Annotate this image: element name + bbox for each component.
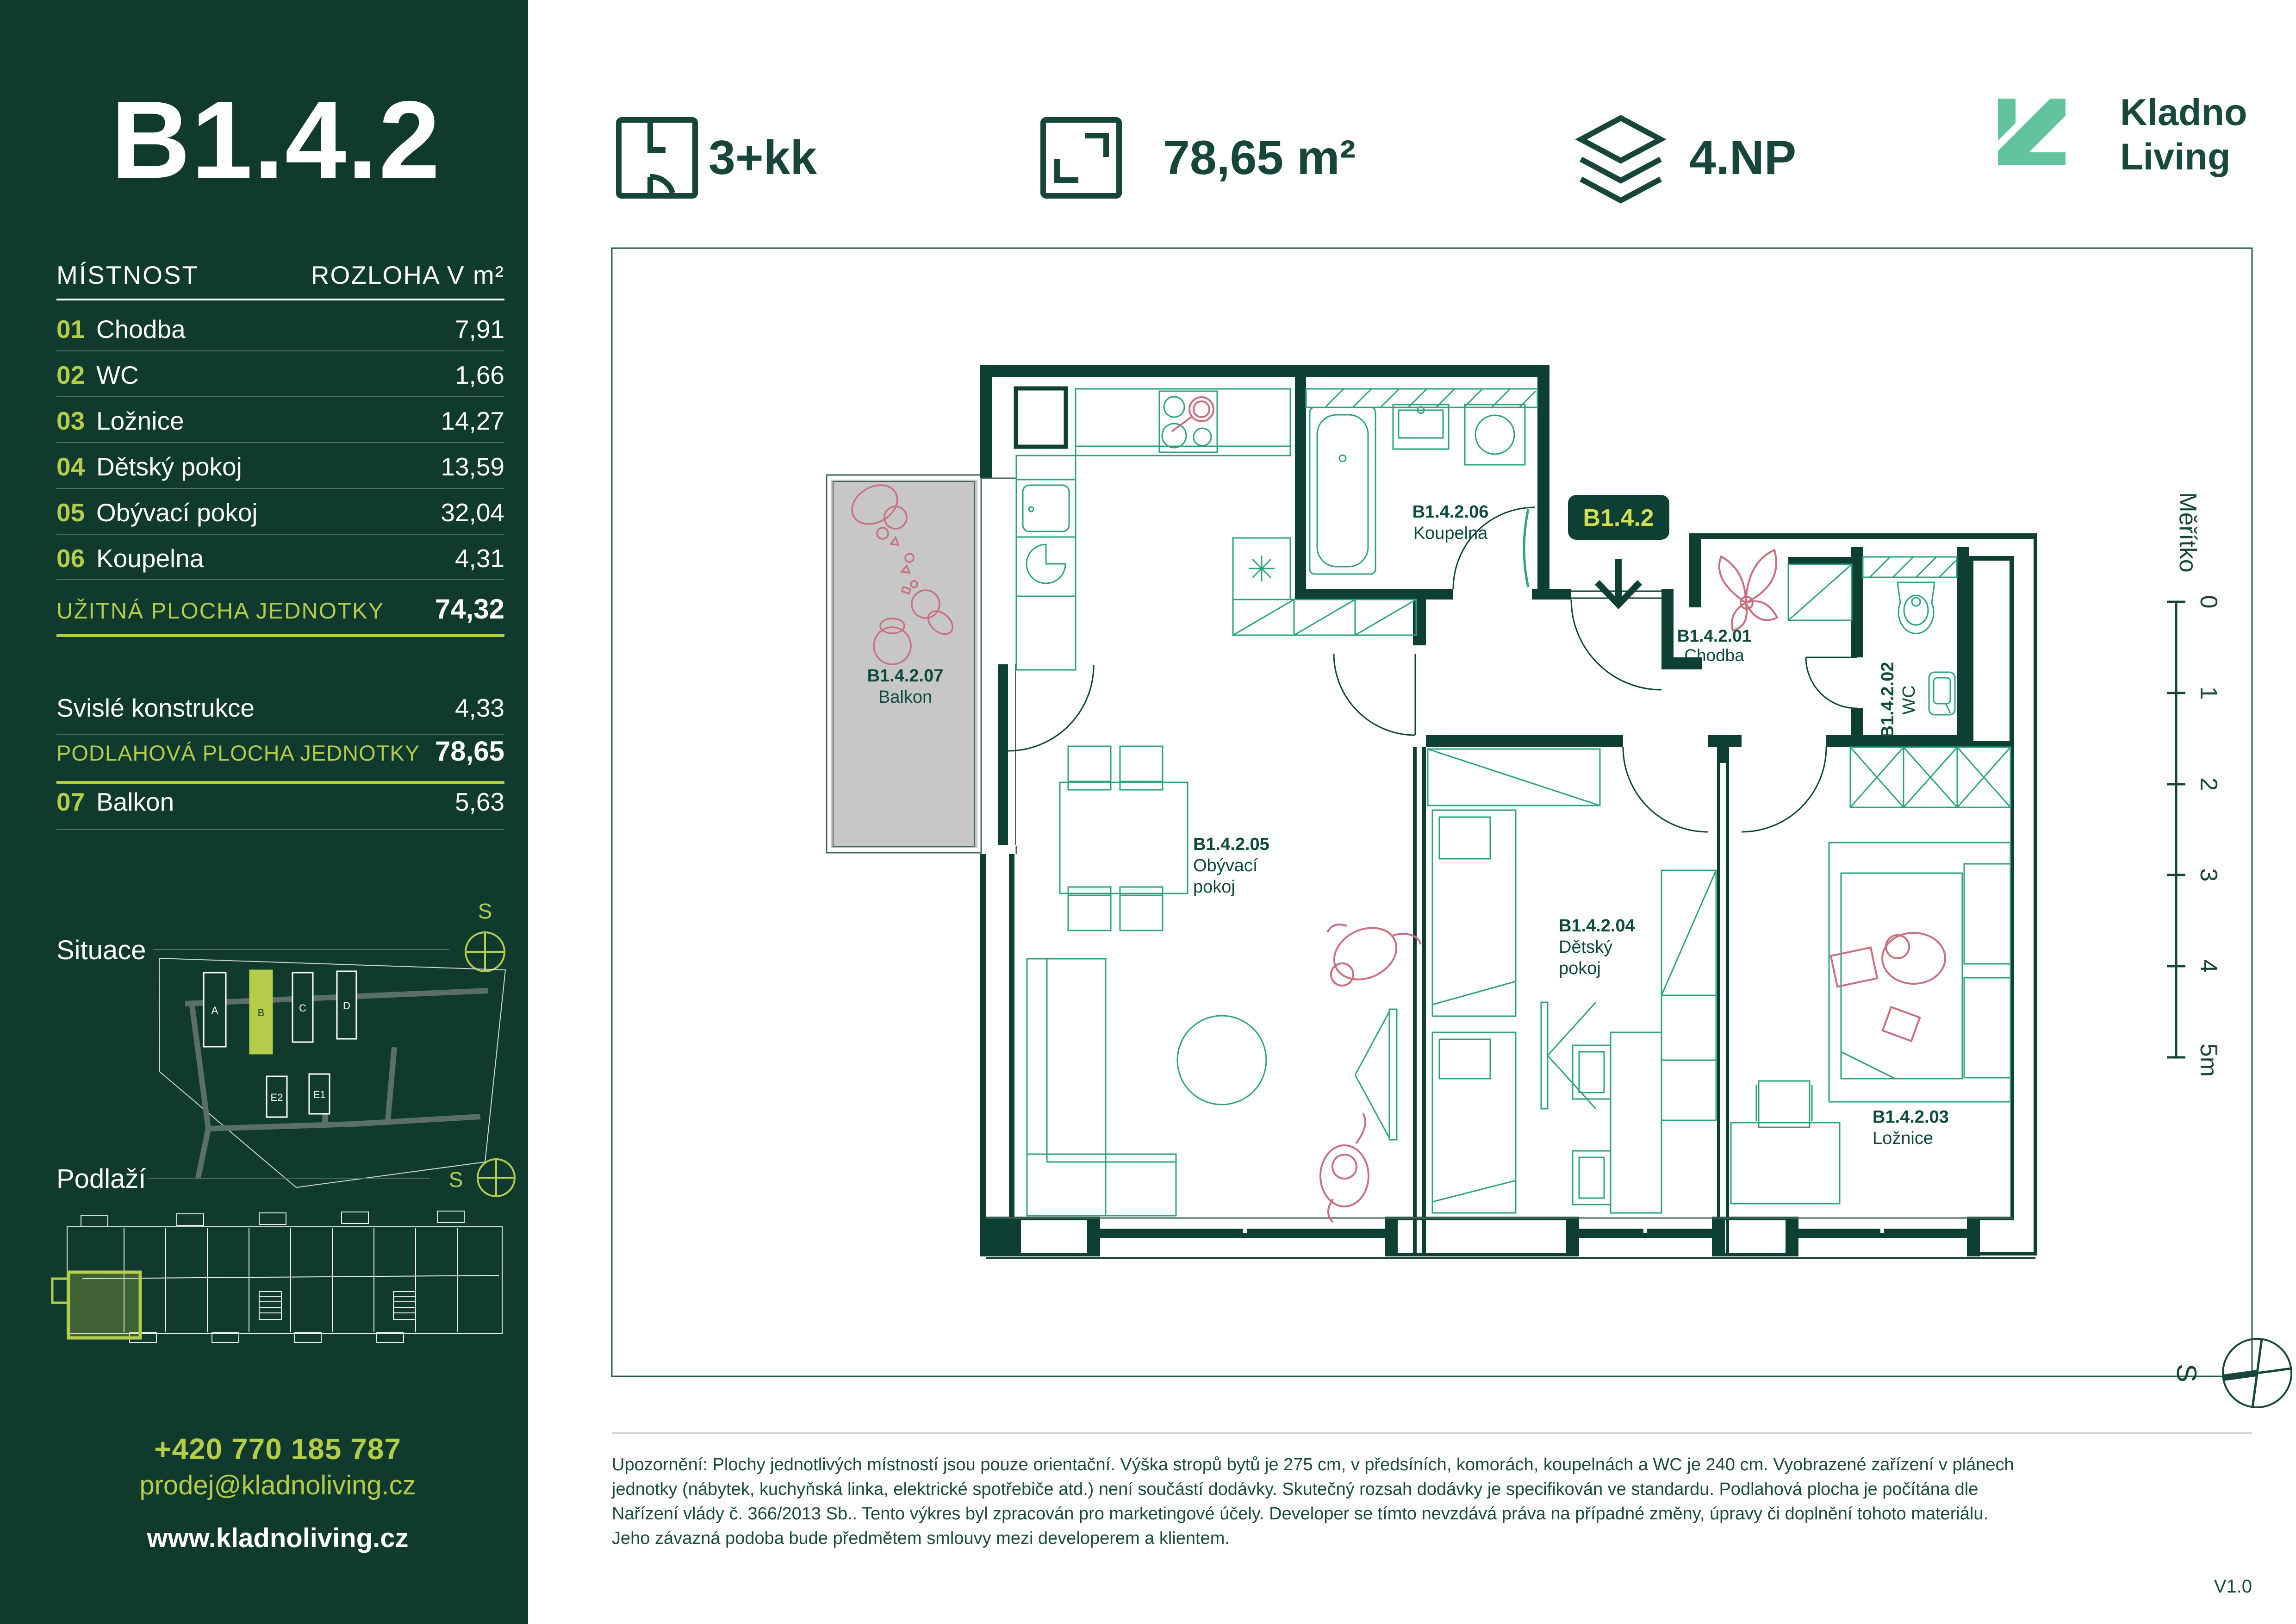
- svg-text:0: 0: [2195, 595, 2222, 609]
- svg-text:pokoj: pokoj: [1559, 959, 1601, 978]
- svg-text:Koupelna: Koupelna: [96, 544, 204, 573]
- svg-text:05: 05: [56, 498, 85, 527]
- svg-text:Jeho závazná podoba bude předm: Jeho závazná podoba bude předmětem smlou…: [612, 1529, 1230, 1548]
- svg-text:B1.4.2.06: B1.4.2.06: [1412, 502, 1489, 522]
- svg-text:ROZLOHA V m²: ROZLOHA V m²: [311, 261, 504, 289]
- svg-text:B1.4.2.07: B1.4.2.07: [867, 666, 944, 686]
- svg-text:MÍSTNOST: MÍSTNOST: [56, 261, 199, 289]
- svg-text:5m: 5m: [2195, 1043, 2222, 1077]
- svg-text:D: D: [343, 1000, 350, 1012]
- svg-text:Obývací pokoj: Obývací pokoj: [96, 498, 258, 527]
- svg-text:2: 2: [2195, 778, 2222, 791]
- svg-text:jednotky (nábytek, kuchyňská l: jednotky (nábytek, kuchyňská linka, elek…: [611, 1480, 1978, 1499]
- svg-text:UŽITNÁ PLOCHA JEDNOTKY: UŽITNÁ PLOCHA JEDNOTKY: [56, 599, 384, 624]
- svg-text:V1.0: V1.0: [2214, 1576, 2252, 1597]
- svg-text:B1.4.2: B1.4.2: [111, 79, 441, 201]
- svg-text:4,31: 4,31: [455, 544, 504, 573]
- svg-text:Podlaží: Podlaží: [56, 1164, 146, 1194]
- svg-text:www.kladnoliving.cz: www.kladnoliving.cz: [146, 1523, 408, 1553]
- svg-text:Svislé konstrukce: Svislé konstrukce: [56, 693, 255, 722]
- svg-text:S: S: [449, 1168, 463, 1192]
- svg-text:Dětský pokoj: Dětský pokoj: [96, 452, 242, 481]
- svg-text:+420 770 185 787: +420 770 185 787: [154, 1432, 401, 1466]
- svg-text:B: B: [258, 1007, 265, 1018]
- svg-text:Upozornění: Plochy jednotlivýc: Upozornění: Plochy jednotlivých místnost…: [612, 1455, 2014, 1474]
- svg-text:4,33: 4,33: [455, 693, 504, 722]
- svg-text:C: C: [299, 1002, 306, 1014]
- svg-text:14,27: 14,27: [441, 406, 504, 435]
- svg-text:74,32: 74,32: [435, 593, 504, 625]
- svg-text:3: 3: [2195, 868, 2222, 882]
- svg-text:Balkon: Balkon: [96, 787, 174, 816]
- svg-text:pokoj: pokoj: [1193, 877, 1235, 897]
- svg-text:1,66: 1,66: [455, 361, 504, 389]
- svg-text:13,59: 13,59: [441, 452, 504, 481]
- svg-text:1: 1: [2195, 687, 2222, 700]
- svg-text:Ložnice: Ložnice: [1873, 1129, 1933, 1148]
- svg-text:E1: E1: [313, 1089, 326, 1100]
- svg-text:Nařízení vlády č. 366/2013 Sb.: Nařízení vlády č. 366/2013 Sb.. Tento vý…: [612, 1504, 1988, 1524]
- svg-text:S: S: [2171, 1364, 2202, 1382]
- svg-text:WC: WC: [1899, 685, 1919, 714]
- svg-text:PODLAHOVÁ PLOCHA JEDNOTKY: PODLAHOVÁ PLOCHA JEDNOTKY: [56, 741, 420, 765]
- svg-text:78,65: 78,65: [435, 736, 504, 767]
- svg-text:Chodba: Chodba: [1684, 646, 1744, 665]
- svg-text:Balkon: Balkon: [878, 687, 932, 707]
- svg-text:Koupelna: Koupelna: [1413, 524, 1488, 543]
- svg-text:Chodba: Chodba: [96, 315, 186, 344]
- svg-text:B1.4.2.05: B1.4.2.05: [1193, 835, 1269, 854]
- svg-text:78,65 m²: 78,65 m²: [1163, 131, 1356, 185]
- svg-text:B1.4.2.03: B1.4.2.03: [1873, 1107, 1949, 1127]
- svg-text:04: 04: [56, 452, 85, 481]
- svg-text:prodej@kladnoliving.cz: prodej@kladnoliving.cz: [139, 1470, 416, 1500]
- svg-text:Ložnice: Ložnice: [96, 406, 184, 435]
- svg-text:B1.4.2: B1.4.2: [1583, 505, 1654, 531]
- svg-text:32,04: 32,04: [441, 498, 504, 527]
- svg-text:4.NP: 4.NP: [1689, 131, 1796, 185]
- svg-text:03: 03: [56, 406, 85, 435]
- svg-text:02: 02: [56, 361, 85, 389]
- svg-text:A: A: [212, 1005, 218, 1016]
- svg-text:Měřítko: Měřítko: [2174, 492, 2201, 572]
- svg-text:3+kk: 3+kk: [709, 131, 817, 185]
- svg-text:5,63: 5,63: [455, 787, 504, 816]
- svg-text:B1.4.2.04: B1.4.2.04: [1559, 916, 1635, 936]
- svg-text:S: S: [478, 899, 492, 923]
- svg-text:Situace: Situace: [56, 935, 146, 965]
- svg-text:Kladno: Kladno: [2120, 92, 2247, 133]
- svg-text:Living: Living: [2120, 136, 2231, 178]
- svg-text:B1.4.2.02: B1.4.2.02: [1878, 662, 1898, 738]
- svg-text:Obývací: Obývací: [1193, 856, 1258, 875]
- svg-text:01: 01: [56, 315, 85, 344]
- svg-text:07: 07: [56, 787, 85, 816]
- svg-text:7,91: 7,91: [455, 315, 504, 344]
- svg-text:B1.4.2.01: B1.4.2.01: [1677, 626, 1751, 645]
- svg-text:4: 4: [2195, 960, 2222, 973]
- svg-text:WC: WC: [96, 361, 139, 389]
- svg-text:E2: E2: [271, 1092, 283, 1103]
- svg-text:Dětský: Dětský: [1559, 937, 1612, 957]
- svg-text:06: 06: [56, 544, 85, 573]
